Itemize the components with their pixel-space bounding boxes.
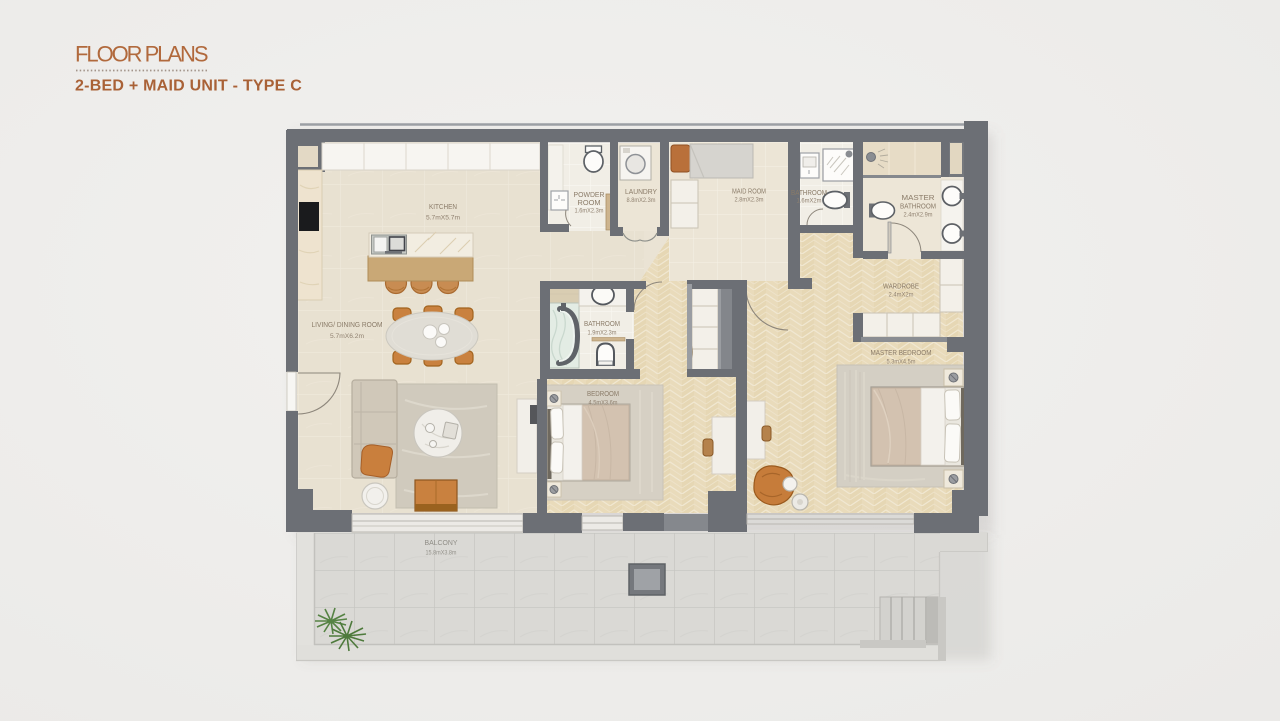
svg-text:8.8mX2.3m: 8.8mX2.3m [627,198,656,204]
svg-text:LAUNDRY: LAUNDRY [625,189,657,196]
svg-text:ROOM: ROOM [578,200,601,207]
svg-text:MAID ROOM: MAID ROOM [732,189,766,196]
svg-text:LIVING/ DINING ROOM: LIVING/ DINING ROOM [312,322,383,329]
svg-text:BEDROOM: BEDROOM [587,391,619,398]
svg-text:POWDER: POWDER [574,192,605,199]
svg-text:1.9mX2.3m: 1.9mX2.3m [588,331,617,337]
svg-text:1.6mX2m: 1.6mX2m [797,199,822,205]
svg-text:15.8mX3.8m: 15.8mX3.8m [426,550,457,557]
svg-text:1.6mX2.3m: 1.6mX2.3m [575,209,604,215]
svg-text:5.7mX6.2m: 5.7mX6.2m [330,333,364,340]
svg-text:FLOOR PLANS: FLOOR PLANS [75,42,209,67]
svg-text:BALCONY: BALCONY [425,540,458,547]
svg-text:2.4mX2m: 2.4mX2m [889,293,914,299]
svg-text:2.8mX2.3m: 2.8mX2.3m [735,198,764,204]
svg-text:5.3mX4.5m: 5.3mX4.5m [887,360,916,366]
svg-text:MASTER: MASTER [902,195,935,202]
svg-text:WARDROBE: WARDROBE [883,284,919,291]
svg-text:2-BED + MAID UNIT - TYPE C: 2-BED + MAID UNIT - TYPE C [75,78,302,95]
svg-text:2.4mX2.9m: 2.4mX2.9m [904,213,933,219]
svg-text:BATHROOM: BATHROOM [791,190,827,197]
svg-text:MASTER BEDROOM: MASTER BEDROOM [871,350,932,357]
svg-text:BATHROOM: BATHROOM [900,204,936,211]
svg-text:BATHROOM: BATHROOM [584,321,620,328]
svg-text:4.5mX3.6m: 4.5mX3.6m [589,401,618,407]
svg-text:KITCHEN: KITCHEN [429,204,457,211]
svg-text:5.7mX5.7m: 5.7mX5.7m [426,215,460,222]
